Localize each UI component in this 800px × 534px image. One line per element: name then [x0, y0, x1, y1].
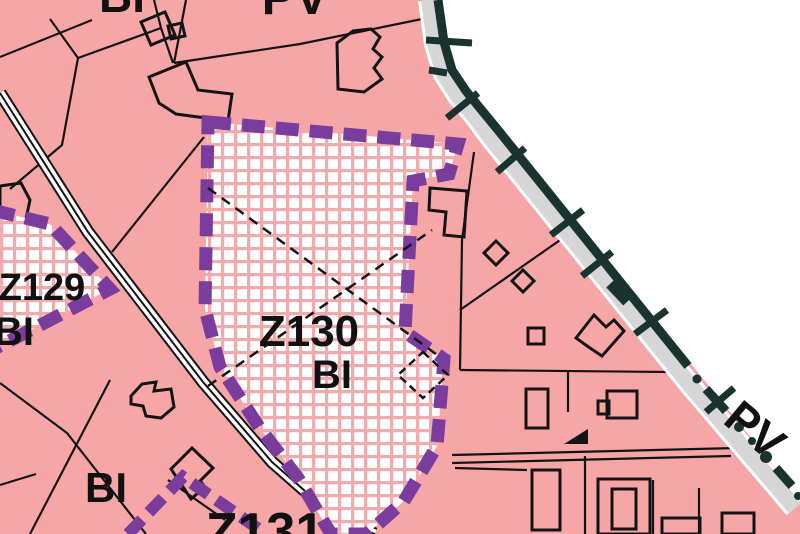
zoning-map-svg: BI PV Z129 BI Z130 BI BI Z131 PV: [0, 0, 800, 534]
zoning-map-canvas[interactable]: BI PV Z129 BI Z130 BI BI Z131 PV: [0, 0, 800, 534]
zone-label-pv-top: PV: [262, 0, 329, 25]
zone-label-z130-bi: BI: [312, 353, 352, 397]
boundary-tick: [426, 40, 472, 43]
zone-label-z129: Z129: [0, 267, 85, 309]
zone-label-bi-bottom: BI: [85, 464, 127, 511]
zone-label-z130: Z130: [259, 307, 359, 356]
zone-label-z129-bi: BI: [0, 310, 34, 354]
boundary-tick: [429, 70, 447, 73]
zone-label-bi-top: BI: [99, 0, 145, 22]
zone-label-z131: Z131: [206, 503, 325, 534]
boundary-dot: [693, 375, 702, 384]
